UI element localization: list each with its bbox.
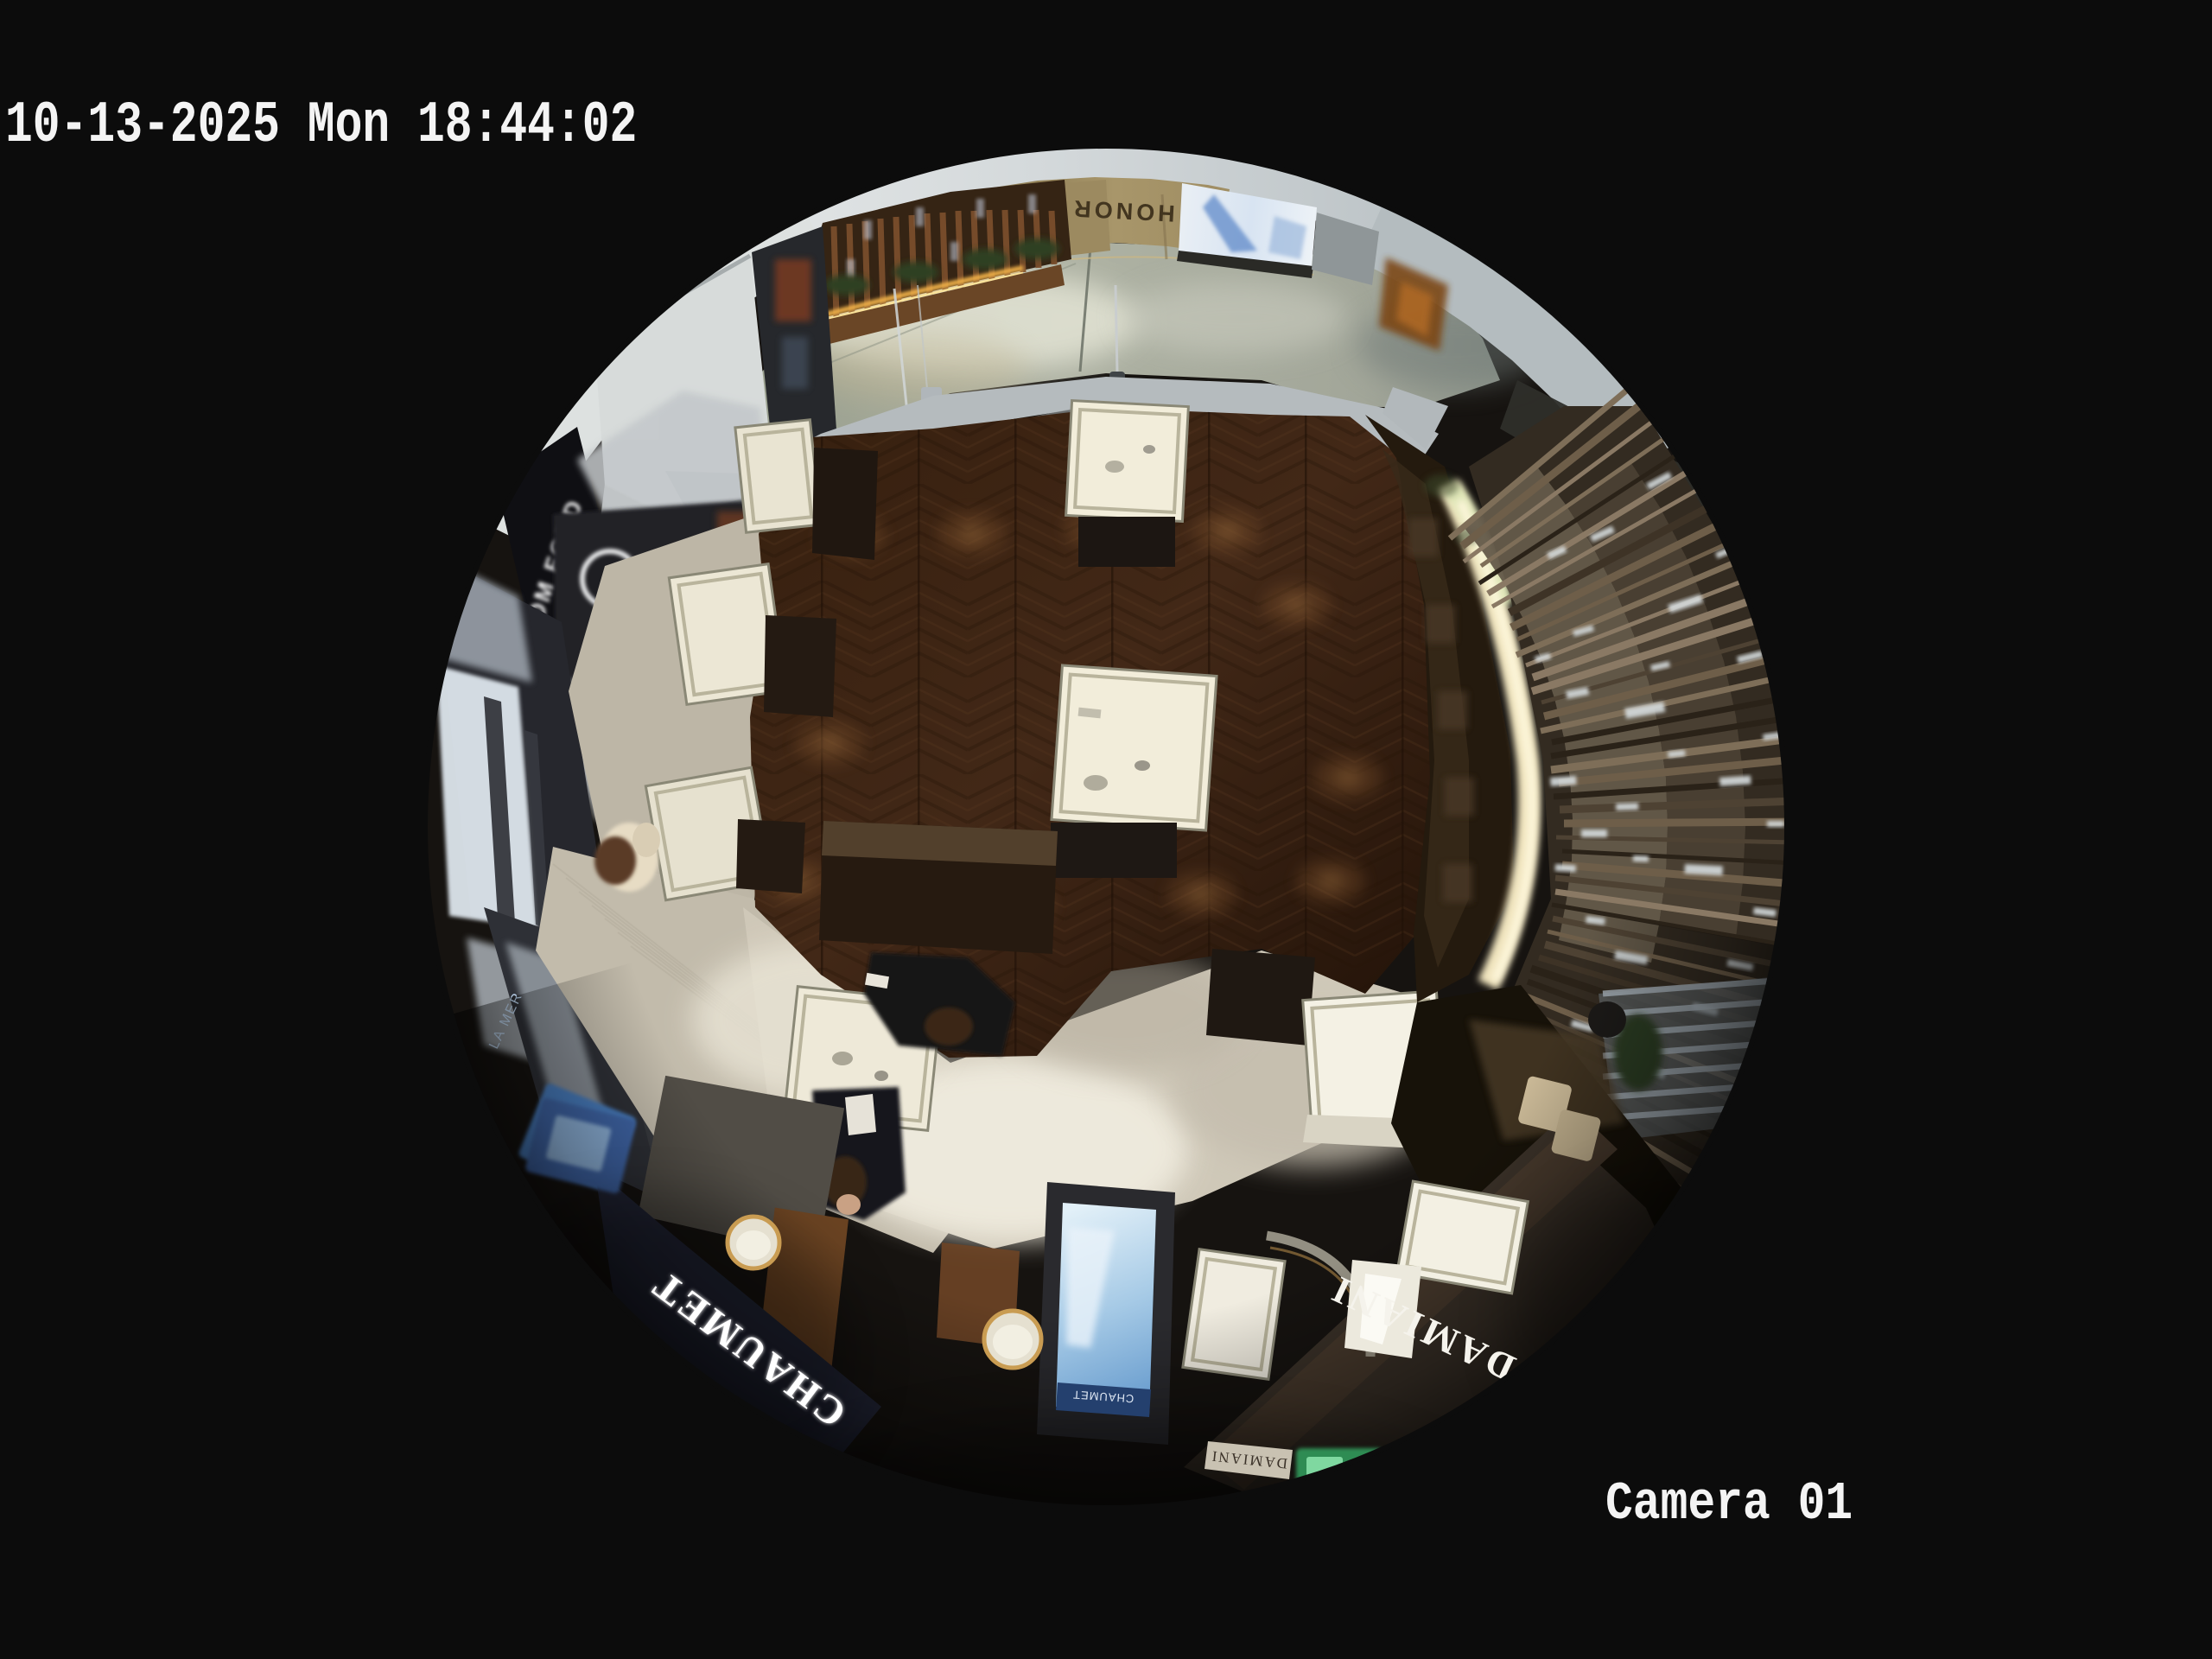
svg-text:HONOR: HONOR	[1071, 195, 1176, 226]
svg-text:10-13-2025 Mon 18:44:02: 10-13-2025 Mon 18:44:02	[5, 92, 637, 159]
svg-text:Camera 01: Camera 01	[1605, 1474, 1853, 1535]
